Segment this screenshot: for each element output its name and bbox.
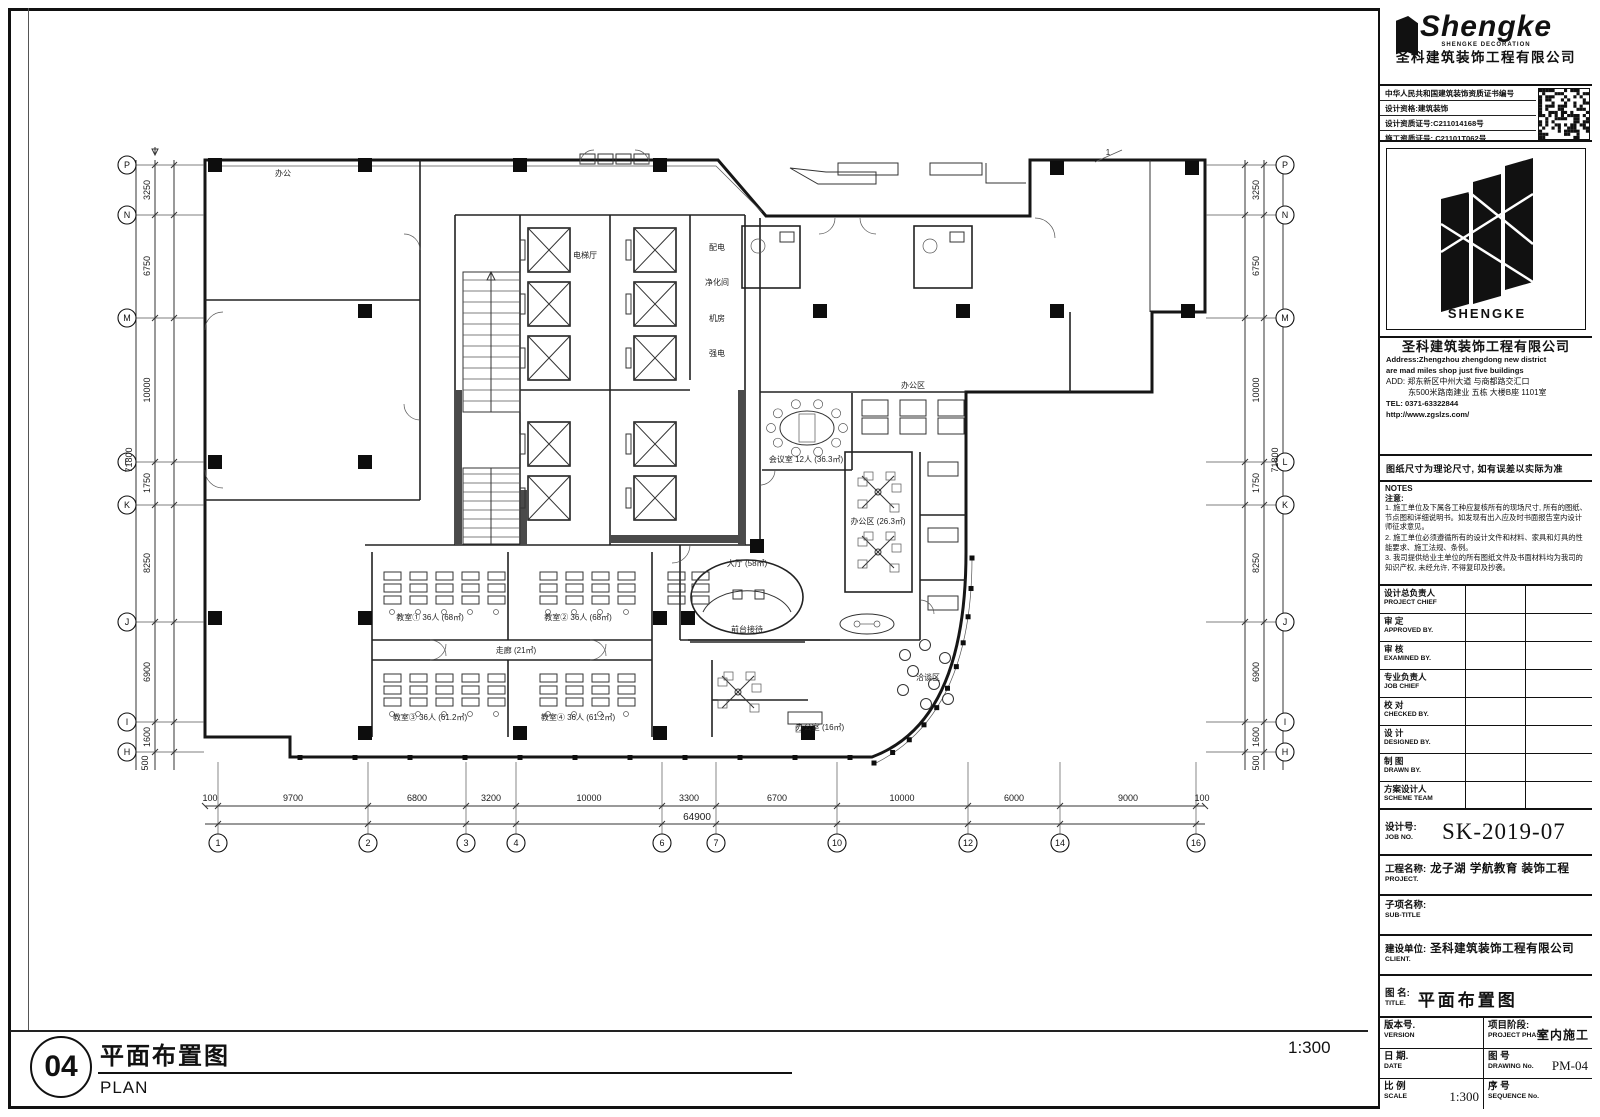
svg-text:N: N: [124, 210, 131, 220]
svg-text:H: H: [1282, 747, 1289, 757]
signature-label-en: CHECKED BY.: [1384, 711, 1465, 719]
note-item: 3. 我司提供给业主单位的所有图纸文件及书面材料均为我司的知识产权, 未经允许,…: [1385, 553, 1587, 572]
logo-mark-icon: [1396, 16, 1418, 56]
signature-label-cn: 制 图: [1384, 756, 1465, 767]
grid-stems: [136, 162, 1276, 834]
svg-text:10000: 10000: [1251, 377, 1261, 402]
building-outline: [205, 160, 1205, 764]
signature-field: [1526, 670, 1592, 697]
notes-block: NOTES 注意: 1. 施工单位及下属各工种应复核所有的现场尺寸, 所有的图纸…: [1380, 482, 1592, 586]
signature-row: 专业负责人 JOB CHIEF: [1380, 670, 1592, 698]
signature-field: [1526, 726, 1592, 753]
svg-text:1: 1: [215, 838, 220, 848]
main-entrance: [580, 150, 649, 164]
svg-text:走廊 (21㎡): 走廊 (21㎡): [496, 645, 537, 655]
project-label-cn: 工程名称:: [1385, 864, 1426, 876]
signature-label-en: DESIGNED BY.: [1384, 739, 1465, 747]
project-value: 龙子湖 学航教育 装饰工程: [1430, 860, 1569, 876]
client-value: 圣科建筑装饰工程有限公司: [1430, 940, 1574, 956]
signature-field: [1466, 586, 1526, 613]
signature-label-en: APPROVED BY.: [1384, 627, 1465, 635]
svg-text:I: I: [126, 717, 129, 727]
interior-walls: [205, 160, 1150, 737]
notes-title: NOTES: [1385, 484, 1587, 494]
sequence-cell: 序 号 SEQUENCE No.: [1484, 1079, 1592, 1109]
sheet-number-badge: 04: [30, 1036, 92, 1098]
svg-text:71800: 71800: [124, 447, 134, 472]
signature-field: [1466, 782, 1526, 810]
svg-text:3300: 3300: [679, 793, 699, 803]
title-block-panel: Shengke SHENGKE DECORATION 圣科建筑装饰工程有限公司 …: [1378, 8, 1592, 1109]
svg-text:办公: 办公: [275, 168, 291, 178]
signature-row: 设 计 DESIGNED BY.: [1380, 726, 1592, 754]
svg-text:前台接待: 前台接待: [731, 624, 763, 634]
classroom-desks: [384, 572, 709, 717]
qr-code: [1538, 88, 1590, 140]
phase-cell: 项目阶段: PROJECT PHASE 室内施工: [1484, 1018, 1592, 1049]
door-swings: [205, 218, 1055, 660]
date-label-en: DATE: [1384, 1063, 1483, 1071]
signature-label-cn: 专业负责人: [1384, 672, 1465, 683]
conference-room: [767, 400, 848, 457]
subtitle-row: 子项名称: SUB-TITLE: [1380, 896, 1592, 936]
signature-field: [1466, 754, 1526, 781]
svg-text:P: P: [1282, 160, 1288, 170]
job-no-value: SK-2019-07: [1442, 819, 1566, 845]
signature-label-en: DRAWN BY.: [1384, 767, 1465, 775]
signature-field: [1526, 642, 1592, 669]
svg-text:教室① 36人 (68㎡): 教室① 36人 (68㎡): [396, 612, 464, 622]
stairs: [463, 272, 520, 544]
svg-text:教室④ 36人 (61.2㎡): 教室④ 36人 (61.2㎡): [541, 712, 616, 722]
floor-plan-canvas: PPNNMMLLKKJJIIHH12346710121416 3250 6750…: [0, 0, 1600, 1117]
columns: [208, 158, 1199, 740]
sheet-scale: 1:300: [1288, 1038, 1331, 1058]
svg-text:9700: 9700: [283, 793, 303, 803]
svg-text:K: K: [124, 500, 130, 510]
drawing-sheet: PPNNMMLLKKJJIIHH12346710121416 3250 6750…: [0, 0, 1600, 1117]
project-name-row: 工程名称: 龙子湖 学航教育 装饰工程 PROJECT.: [1380, 856, 1592, 896]
company-name: 圣科建筑装饰工程有限公司: [1386, 341, 1586, 352]
drawing-no-cell: 图 号 DRAWING No. PM-04: [1484, 1049, 1592, 1080]
signature-field: [1466, 698, 1526, 725]
job-no-label-cn: 设计号:: [1385, 822, 1442, 834]
svg-text:J: J: [125, 617, 130, 627]
signature-label-cn: 审 核: [1384, 644, 1465, 655]
signature-table: 设计总负责人 PROJECT CHIEF审 定 APPROVED BY.审 核 …: [1380, 586, 1592, 810]
svg-text:6800: 6800: [407, 793, 427, 803]
signature-field: [1526, 614, 1592, 641]
svg-text:3250: 3250: [1251, 180, 1261, 200]
date-label-cn: 日 期.: [1384, 1051, 1483, 1063]
svg-text:10: 10: [832, 838, 842, 848]
svg-text:M: M: [123, 313, 131, 323]
project-label-en: PROJECT.: [1385, 876, 1592, 884]
signature-field: [1466, 642, 1526, 669]
job-number-row: 设计号: JOB NO. SK-2019-07: [1380, 810, 1592, 856]
drawing-title-label-en: TITLE.: [1385, 1000, 1410, 1008]
website-link: http://www.zgslzs.com/: [1386, 409, 1586, 420]
svg-text:10000: 10000: [889, 793, 914, 803]
note-item: 1. 施工单位及下属各工种应复核所有的现场尺寸, 所有的图纸、节点图和详细说明书…: [1385, 503, 1587, 532]
counters: [751, 163, 1026, 253]
dim-text-right: 3250 6750 10000 1750 8250 6900 1600 500 …: [1251, 180, 1280, 771]
svg-text:4: 4: [513, 838, 518, 848]
svg-text:6750: 6750: [142, 256, 152, 276]
svg-text:办公室 (16㎡): 办公室 (16㎡): [796, 722, 845, 732]
svg-text:3250: 3250: [142, 180, 152, 200]
signature-label-cn: 设计总负责人: [1384, 588, 1465, 599]
client-label-en: CLIENT.: [1385, 956, 1592, 964]
svg-text:H: H: [124, 747, 131, 757]
svg-text:机房: 机房: [709, 313, 725, 323]
svg-text:净化间: 净化间: [705, 277, 729, 287]
drawing-title-label-cn: 图 名:: [1385, 988, 1410, 1000]
address-en: Address:Zhengzhou zhengdong new district: [1386, 354, 1586, 365]
svg-text:配电: 配电: [709, 242, 725, 252]
elevator-shafts: [520, 228, 676, 520]
signature-label-en: SCHEME TEAM: [1384, 795, 1465, 803]
svg-text:1600: 1600: [1251, 727, 1261, 747]
subtitle-label-cn: 子项名称:: [1385, 900, 1592, 912]
note-item: 2. 施工单位必须遵循所有的设计文件和材料、家具和灯具的性能要求、施工法规、条例…: [1385, 533, 1587, 552]
signature-label-cn: 校 对: [1384, 700, 1465, 711]
sequence-label-cn: 序 号: [1488, 1081, 1592, 1093]
date-cell: 日 期. DATE: [1380, 1049, 1483, 1080]
signature-label-en: JOB CHIEF: [1384, 683, 1465, 691]
svg-text:6700: 6700: [767, 793, 787, 803]
signature-row: 方案设计人 SCHEME TEAM: [1380, 782, 1592, 810]
version-cell: 版本号. VERSION: [1380, 1018, 1483, 1049]
svg-text:2: 2: [365, 838, 370, 848]
svg-text:强电: 强电: [709, 348, 725, 358]
svg-text:10000: 10000: [576, 793, 601, 803]
cert-line: 设计资格:建筑装饰: [1380, 101, 1536, 116]
signature-field: [1466, 726, 1526, 753]
signature-label-cn: 审 定: [1384, 616, 1465, 627]
cert-line: 施工资质证号: C21101T062号: [1380, 131, 1536, 142]
dim-text-left: 3250 6750 10000 1750 8250 6900 1600 500 …: [124, 180, 152, 771]
dimension-notice: 图纸尺寸为理论尺寸, 如有误差以实际为准: [1380, 456, 1592, 482]
sequence-label-en: SEQUENCE No.: [1488, 1093, 1592, 1101]
phone: TEL: 0371-63322844: [1386, 398, 1586, 409]
svg-text:14: 14: [1055, 838, 1065, 848]
signature-field: [1466, 614, 1526, 641]
notes-subtitle: 注意:: [1385, 494, 1587, 504]
svg-text:7: 7: [713, 838, 718, 848]
drawing-title-row: 图 名: TITLE. 平面布置图: [1380, 976, 1592, 1018]
svg-text:N: N: [1282, 210, 1289, 220]
phase-value: 室内施工: [1537, 1026, 1589, 1043]
svg-text:洽谈区: 洽谈区: [916, 672, 940, 682]
drawing-no-value: PM-04: [1552, 1058, 1588, 1074]
svg-text:SHENGKE: SHENGKE: [1448, 306, 1526, 321]
signature-field: [1526, 782, 1592, 810]
signature-row: 审 定 APPROVED BY.: [1380, 614, 1592, 642]
svg-text:8250: 8250: [1251, 553, 1261, 573]
scale-cell: 比 例 SCALE 1:300: [1380, 1079, 1483, 1109]
reception-desk: [690, 560, 894, 642]
sheet-title-cn: 平面布置图: [100, 1036, 230, 1071]
svg-text:500: 500: [140, 755, 150, 770]
svg-text:M: M: [1281, 313, 1289, 323]
signature-field: [1526, 586, 1592, 613]
signature-field: [1466, 670, 1526, 697]
svg-text:12: 12: [963, 838, 973, 848]
svg-text:3200: 3200: [481, 793, 501, 803]
svg-text:6900: 6900: [1251, 662, 1261, 682]
svg-text:9000: 9000: [1118, 793, 1138, 803]
job-no-label-en: JOB NO.: [1385, 834, 1442, 842]
room-labels: 办公 电梯厅 配电 净化间 机房 强电 会议室 12人 (36.3㎡) 办公区 …: [275, 148, 1111, 732]
svg-text:100: 100: [1194, 793, 1209, 803]
cert-line: 中华人民共和国建筑装饰资质证书编号: [1380, 86, 1536, 101]
svg-text:8250: 8250: [142, 553, 152, 573]
svg-text:16: 16: [1191, 838, 1201, 848]
signature-label-en: PROJECT CHIEF: [1384, 599, 1465, 607]
signature-row: 校 对 CHECKED BY.: [1380, 698, 1592, 726]
sheet-title-rule: [98, 1072, 792, 1074]
svg-text:L: L: [1282, 457, 1287, 467]
signature-label-cn: 方案设计人: [1384, 784, 1465, 795]
svg-text:500: 500: [1251, 755, 1261, 770]
meta-grid: 版本号. VERSION 日 期. DATE 比 例 SCALE 1:300 项…: [1380, 1018, 1592, 1109]
subtitle-label-en: SUB-TITLE: [1385, 912, 1592, 920]
lounge-seating: [788, 640, 954, 733]
signature-label-cn: 设 计: [1384, 728, 1465, 739]
address-cn: 东500米路南建业 五栋 大楼B座 1101室: [1386, 387, 1586, 398]
svg-text:办公区: 办公区: [901, 380, 925, 390]
svg-text:I: I: [1284, 717, 1287, 727]
svg-text:6000: 6000: [1004, 793, 1024, 803]
svg-text:办公区 (26.3㎡): 办公区 (26.3㎡): [850, 516, 905, 526]
svg-text:64900: 64900: [683, 812, 711, 823]
company-logo-block: Shengke SHENGKE DECORATION 圣科建筑装饰工程有限公司: [1380, 8, 1592, 86]
svg-text:P: P: [124, 160, 130, 170]
signature-label-en: EXAMINED BY.: [1384, 655, 1465, 663]
svg-text:3: 3: [463, 838, 468, 848]
svg-text:K: K: [1282, 500, 1288, 510]
signature-row: 制 图 DRAWN BY.: [1380, 754, 1592, 782]
version-label-cn: 版本号.: [1384, 1020, 1483, 1032]
signature-row: 审 核 EXAMINED BY.: [1380, 642, 1592, 670]
client-label-cn: 建设单位:: [1385, 944, 1426, 956]
sheet-title-en: PLAN: [100, 1078, 148, 1098]
svg-text:大厅 (58㎡): 大厅 (58㎡): [727, 558, 768, 568]
certificates-block: 中华人民共和国建筑装饰资质证书编号 设计资格:建筑装饰 设计资质证号:C2110…: [1380, 86, 1592, 142]
svg-text:教室② 36人 (68㎡): 教室② 36人 (68㎡): [544, 612, 612, 622]
drawing-title-value: 平面布置图: [1418, 986, 1518, 1011]
svg-text:电梯厅: 电梯厅: [573, 250, 597, 260]
svg-text:6900: 6900: [142, 662, 152, 682]
logo-emblem-box: SHENGKE: [1380, 142, 1592, 338]
address-en: are mad miles shop just five buildings: [1386, 365, 1586, 376]
address-cn: ADD: 郑东新区中州大道 与商都路交汇口: [1386, 376, 1586, 387]
svg-text:1750: 1750: [1251, 473, 1261, 493]
company-address-block: 圣科建筑装饰工程有限公司 Address:Zhengzhou zhengdong…: [1380, 338, 1592, 456]
shengke-emblem: SHENGKE: [1411, 154, 1561, 324]
signature-row: 设计总负责人 PROJECT CHIEF: [1380, 586, 1592, 614]
open-office-desks: [862, 400, 964, 610]
cert-line: 设计资质证号:C211014168号: [1380, 116, 1536, 131]
svg-text:教室③ 36人 (61.2㎡): 教室③ 36人 (61.2㎡): [393, 712, 468, 722]
client-row: 建设单位: 圣科建筑装饰工程有限公司 CLIENT.: [1380, 936, 1592, 976]
svg-text:10000: 10000: [142, 377, 152, 402]
svg-text:1600: 1600: [142, 727, 152, 747]
grid-bubbles: PPNNMMLLKKJJIIHH12346710121416: [118, 156, 1294, 852]
signature-field: [1526, 754, 1592, 781]
svg-text:6: 6: [659, 838, 664, 848]
svg-text:J: J: [1283, 617, 1288, 627]
svg-text:71800: 71800: [1270, 447, 1280, 472]
svg-text:会议室 12人 (36.3㎡): 会议室 12人 (36.3㎡): [769, 454, 844, 464]
svg-text:1750: 1750: [142, 473, 152, 493]
scale-value: 1:300: [1449, 1089, 1479, 1105]
version-label-en: VERSION: [1384, 1032, 1483, 1040]
svg-text:6750: 6750: [1251, 256, 1261, 276]
svg-text:100: 100: [202, 793, 217, 803]
signature-field: [1526, 698, 1592, 725]
